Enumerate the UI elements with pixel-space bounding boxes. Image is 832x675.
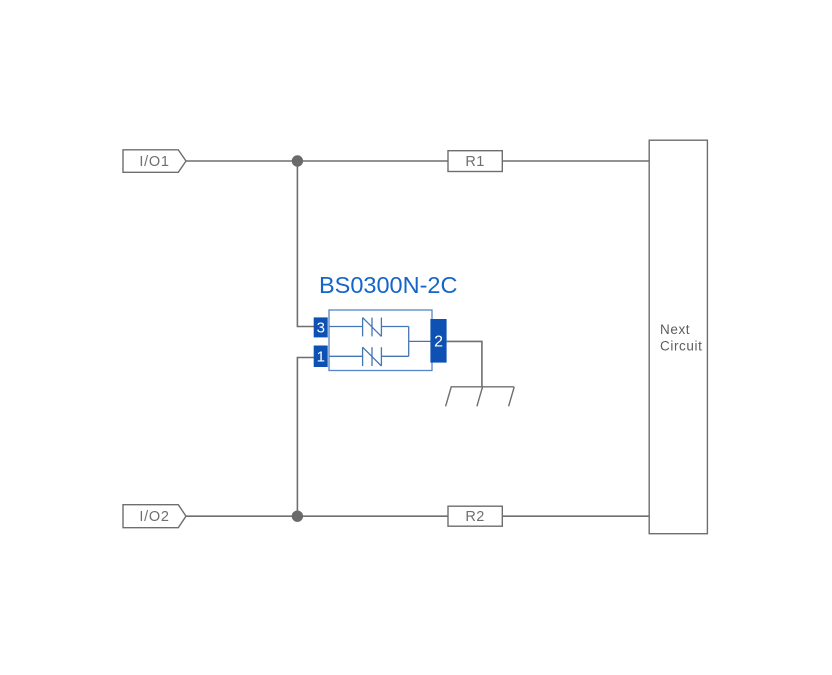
svg-text:3: 3: [317, 319, 325, 336]
svg-text:R1: R1: [465, 154, 484, 170]
svg-text:I/O1: I/O1: [139, 154, 169, 170]
svg-text:1: 1: [317, 349, 325, 366]
svg-text:I/O2: I/O2: [139, 509, 169, 525]
svg-text:BS0300N-2C: BS0300N-2C: [319, 272, 457, 298]
svg-text:Circuit: Circuit: [660, 339, 702, 354]
svg-text:2: 2: [434, 334, 443, 351]
svg-text:R2: R2: [465, 509, 484, 525]
svg-text:Next: Next: [660, 322, 690, 337]
